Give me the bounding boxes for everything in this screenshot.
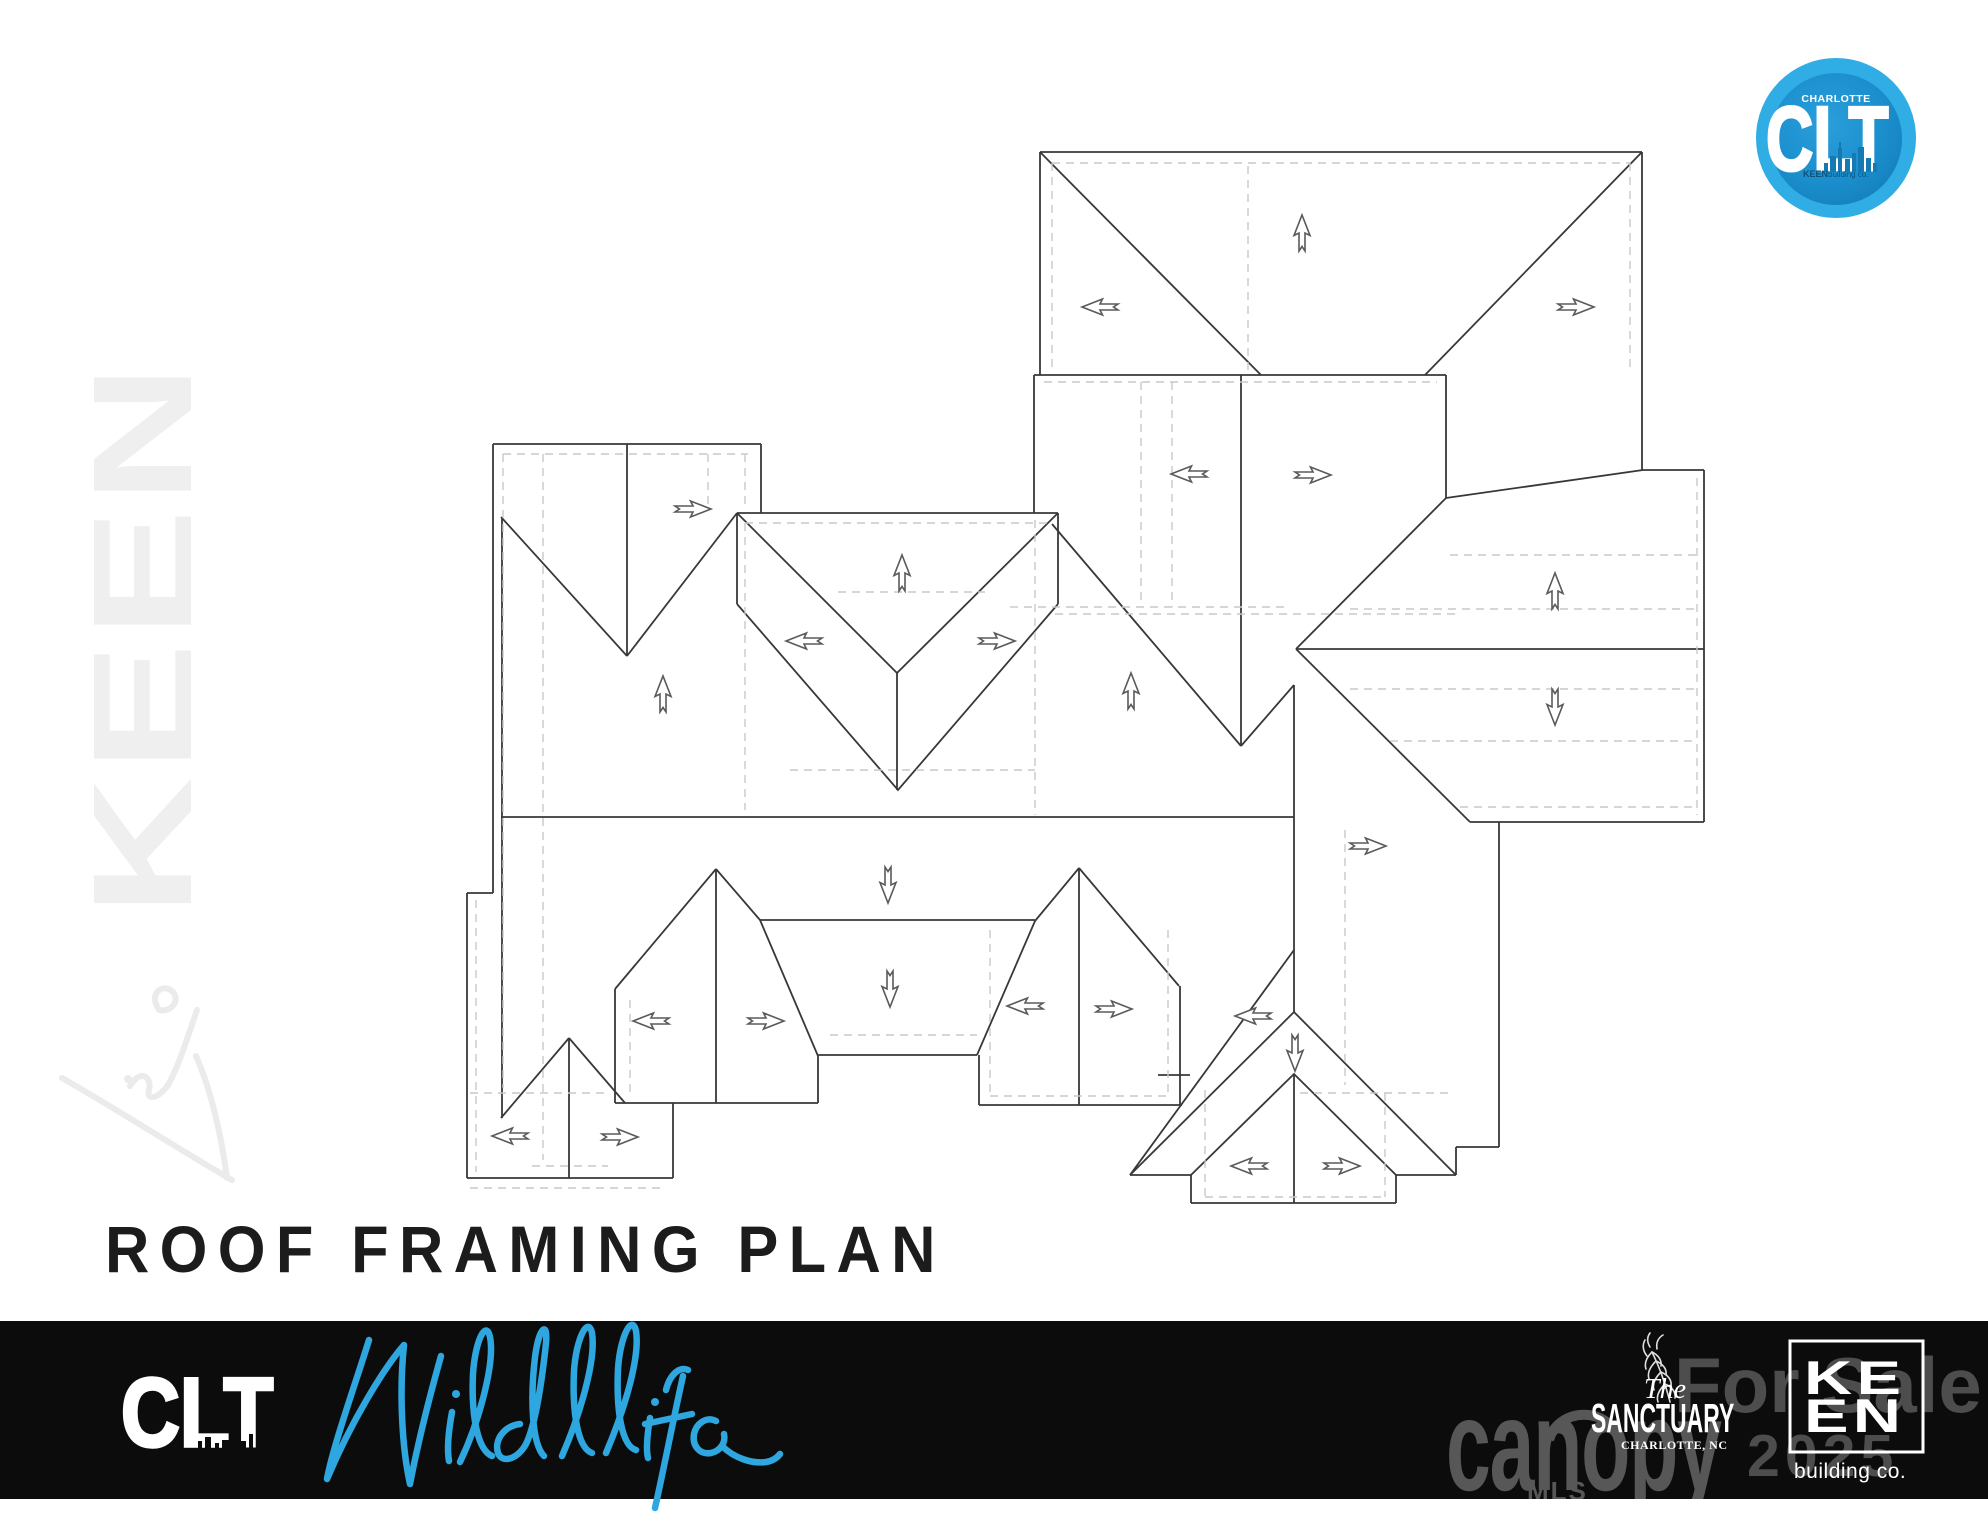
svg-text:building co.: building co. bbox=[1794, 1460, 1906, 1483]
svg-text:SANCTUARY: SANCTUARY bbox=[1591, 1396, 1734, 1442]
svg-text:CLT: CLT bbox=[121, 1358, 273, 1466]
svg-text:EN: EN bbox=[1804, 1390, 1905, 1442]
svg-text:ROOF FRAMING PLAN: ROOF FRAMING PLAN bbox=[105, 1212, 935, 1287]
svg-text:CHARLOTTE, NC: CHARLOTTE, NC bbox=[1621, 1438, 1728, 1452]
svg-text:KEEN: KEEN bbox=[63, 359, 221, 916]
svg-text:KEENbuilding co.: KEENbuilding co. bbox=[1803, 169, 1869, 179]
